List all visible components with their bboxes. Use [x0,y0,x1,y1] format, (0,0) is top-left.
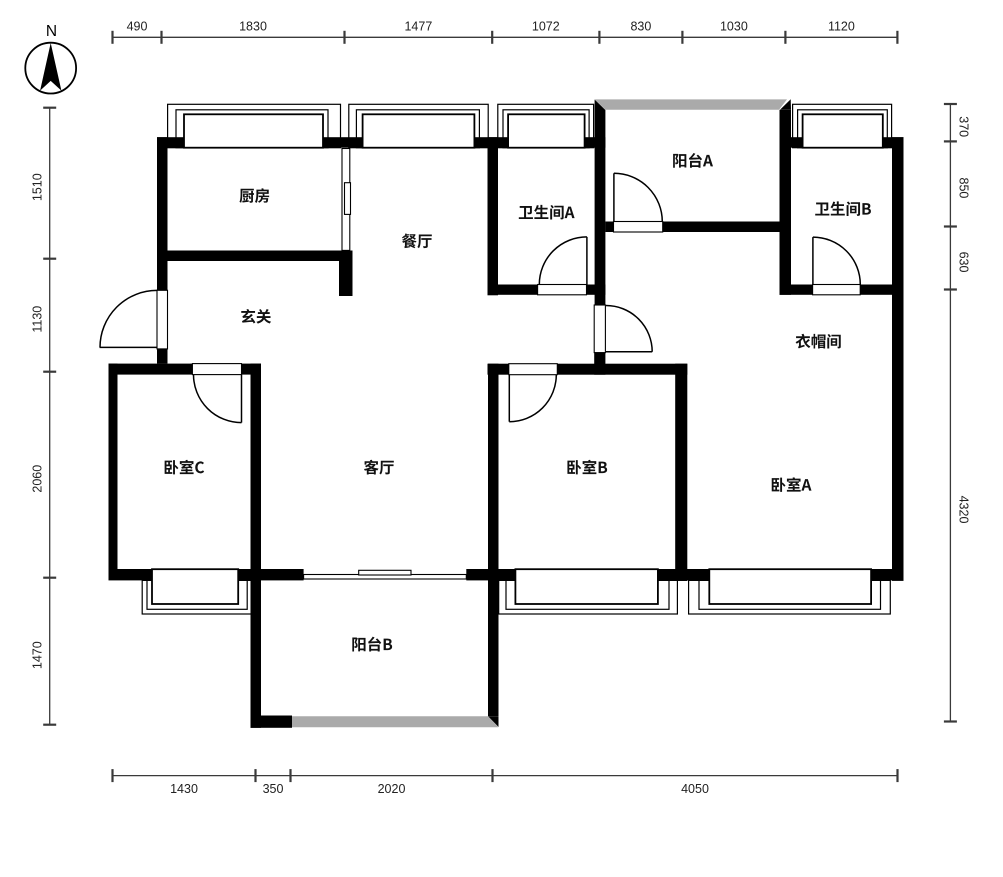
svg-text:1030: 1030 [720,19,748,33]
svg-text:2020: 2020 [378,782,406,796]
svg-text:1130: 1130 [31,306,45,333]
svg-text:1510: 1510 [31,173,45,201]
svg-text:4050: 4050 [681,782,709,796]
svg-text:2060: 2060 [31,465,45,493]
svg-text:1470: 1470 [31,641,45,669]
svg-text:630: 630 [956,252,970,273]
svg-text:1477: 1477 [404,19,432,33]
svg-text:370: 370 [956,116,970,137]
svg-text:1830: 1830 [239,19,267,33]
svg-text:350: 350 [263,782,284,796]
svg-text:1072: 1072 [532,19,560,33]
svg-text:1430: 1430 [170,782,198,796]
svg-text:N: N [46,23,57,40]
svg-text:850: 850 [956,178,970,199]
svg-text:830: 830 [630,19,651,33]
svg-text:4320: 4320 [956,496,970,524]
svg-text:1120: 1120 [828,19,855,33]
svg-text:490: 490 [127,19,148,33]
